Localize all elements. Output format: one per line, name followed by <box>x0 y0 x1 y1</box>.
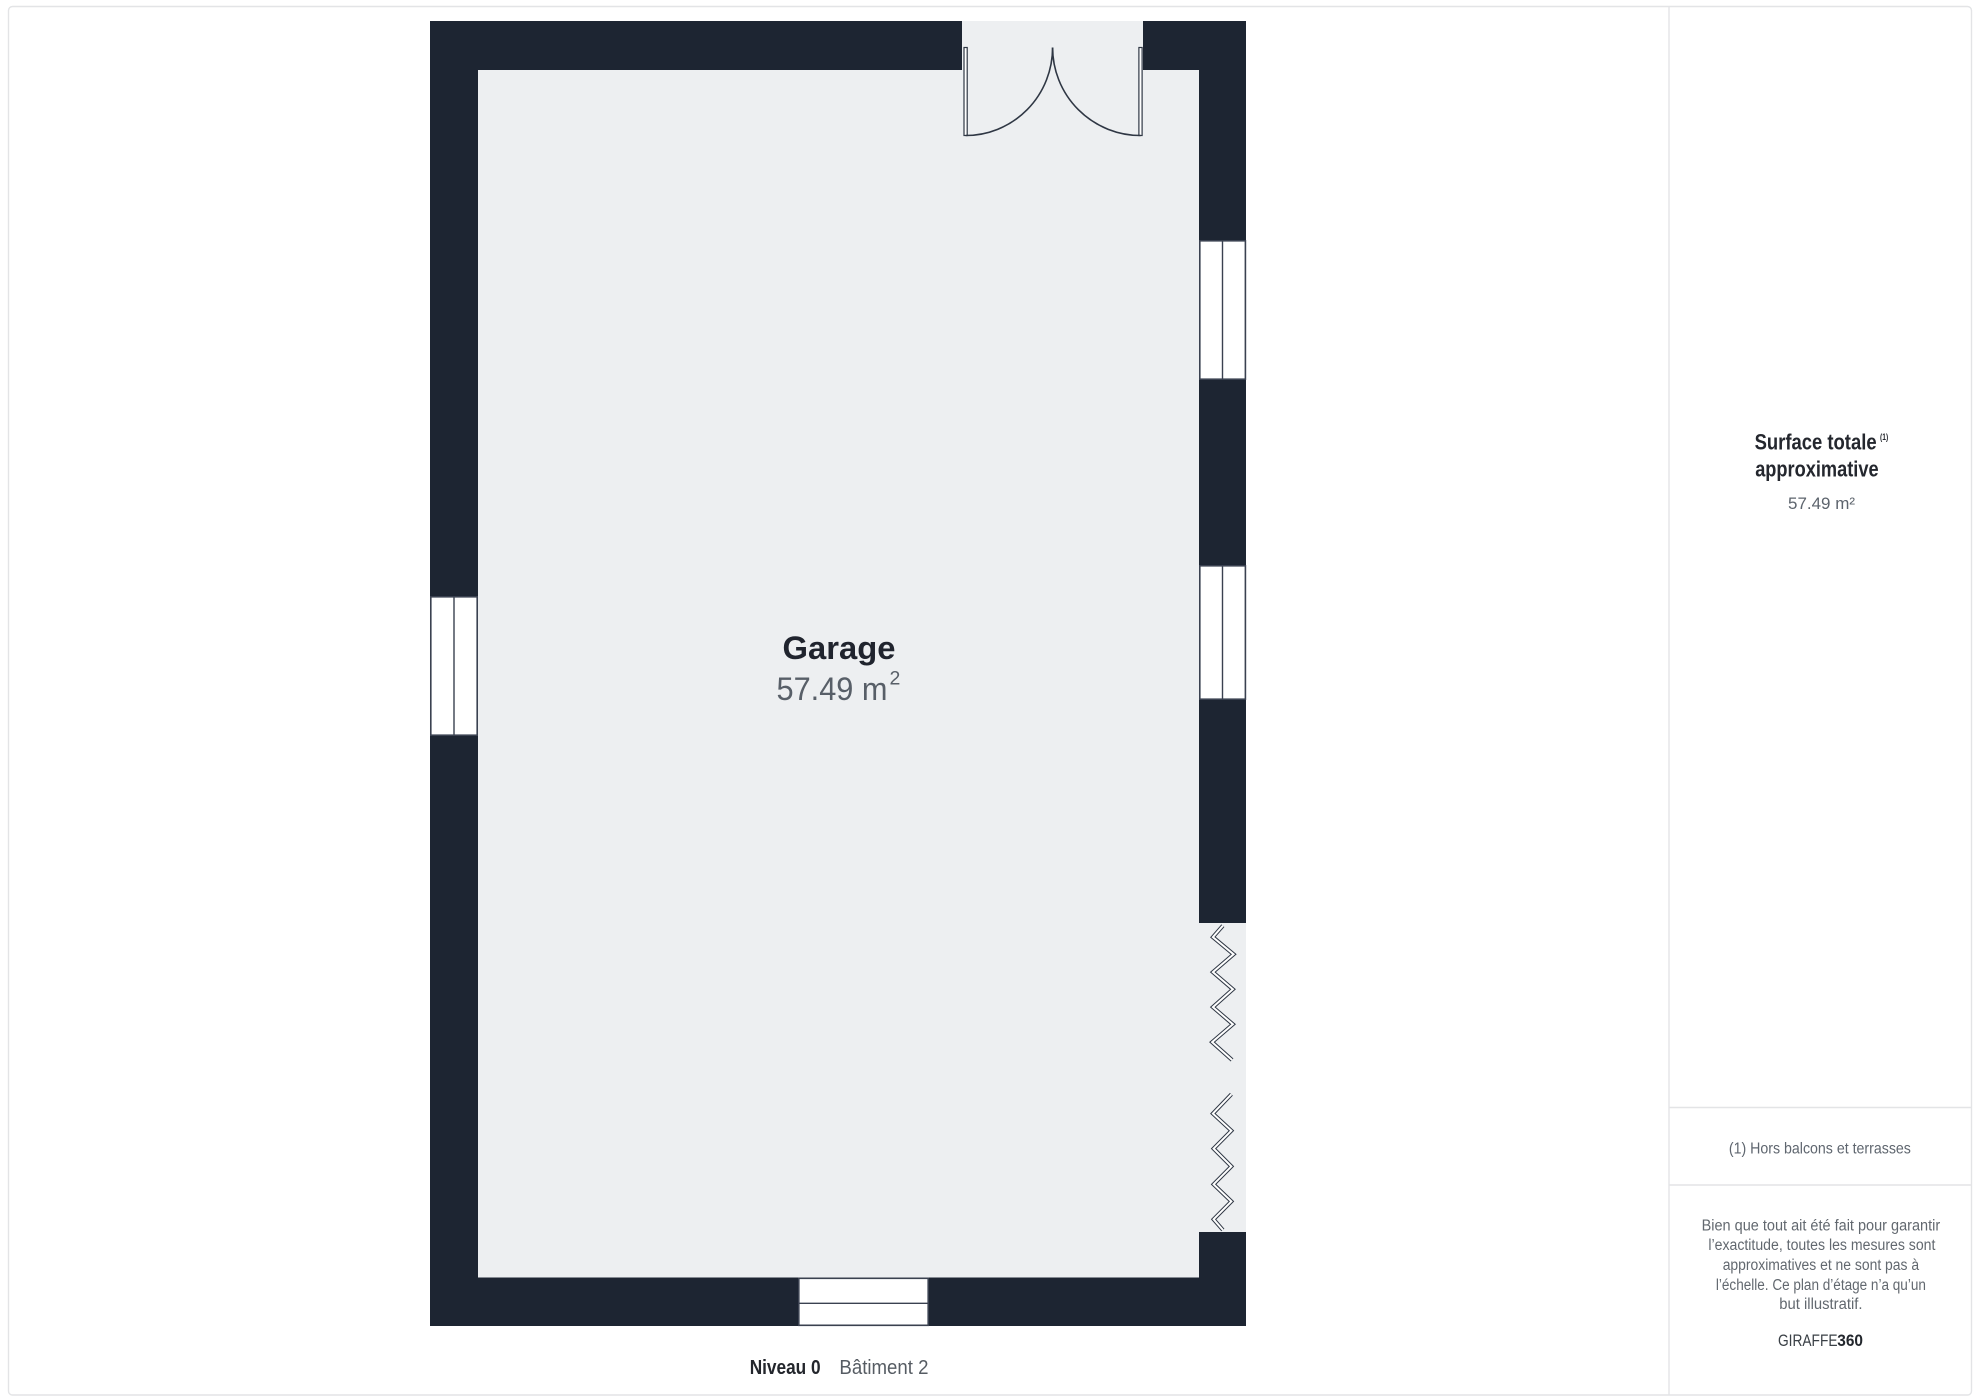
svg-text:2: 2 <box>890 668 901 690</box>
svg-text:Bâtiment 2: Bâtiment 2 <box>839 1357 928 1379</box>
svg-text:l’exactitude, toutes les mesur: l’exactitude, toutes les mesures sont <box>1708 1237 1936 1254</box>
svg-text:l’échelle. Ce plan d’étage n’a: l’échelle. Ce plan d’étage n’a qu’un <box>1716 1277 1926 1294</box>
svg-text:but illustratif.: but illustratif. <box>1779 1296 1862 1313</box>
svg-text:approximative: approximative <box>1755 457 1878 482</box>
svg-text:57.49 m: 57.49 m <box>777 671 888 707</box>
svg-text:360: 360 <box>1837 1331 1863 1350</box>
svg-text:GIRAFFE: GIRAFFE <box>1778 1331 1838 1350</box>
svg-text:Bien que tout ait été fait pou: Bien que tout ait été fait pour garantir <box>1702 1218 1941 1235</box>
svg-text:Garage: Garage <box>783 630 896 666</box>
svg-text:(1) Hors balcons et terrasses: (1) Hors balcons et terrasses <box>1729 1141 1911 1158</box>
svg-text:57.49 m²: 57.49 m² <box>1788 495 1856 513</box>
svg-text:Surface totale: Surface totale <box>1755 430 1877 455</box>
svg-text:approximatives et ne sont pas: approximatives et ne sont pas à <box>1723 1257 1920 1274</box>
svg-text:(1): (1) <box>1880 432 1888 443</box>
svg-text:Niveau 0: Niveau 0 <box>750 1357 821 1379</box>
